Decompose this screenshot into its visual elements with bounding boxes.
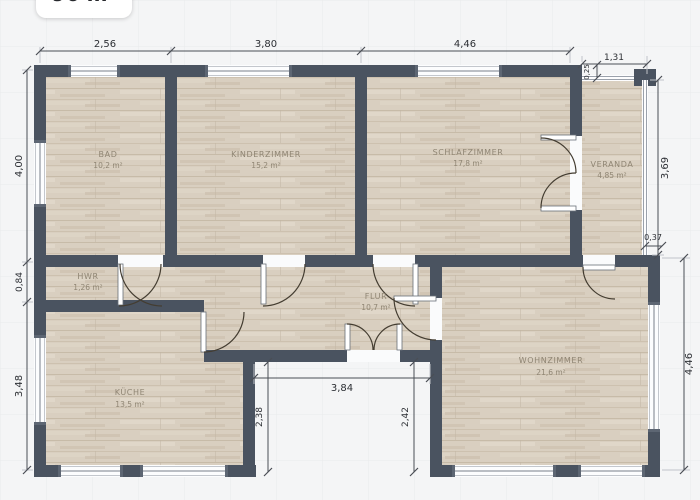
total-area-label: 96 m²: [52, 0, 116, 6]
room-name: KÜCHE: [115, 387, 146, 397]
room-name: BAD: [99, 150, 118, 159]
room-name: FLUR: [365, 292, 387, 301]
room-area: 4,85 m²: [597, 171, 626, 180]
room-area: 21,6 m²: [536, 368, 565, 377]
window: [578, 465, 645, 477]
window: [68, 65, 120, 77]
dimension-label: 0,37: [644, 233, 662, 242]
window: [452, 465, 556, 477]
floorplan-drawing: 2,56 3,80 4,46 1,31 0,25 4,00 0,84 3,48 …: [0, 0, 700, 500]
floor-wohnzimmer: [436, 260, 654, 472]
door-opening: [373, 255, 415, 267]
room-area: 17,8 m²: [453, 159, 482, 168]
door-leaf: [394, 296, 436, 301]
door-leaf: [201, 312, 206, 352]
dimension-label: 3,48: [14, 375, 25, 397]
wall-segment: [430, 255, 442, 477]
floorplan-canvas[interactable]: 2,56 3,80 4,46 1,31 0,25 4,00 0,84 3,48 …: [0, 0, 700, 500]
room-name: SCHLAFZIMMER: [433, 148, 504, 157]
room-name: VERANDA: [591, 160, 634, 169]
wall-segment: [243, 350, 255, 477]
door-opening: [347, 350, 400, 362]
window: [34, 140, 46, 207]
room-area: 1,26 m²: [73, 283, 102, 292]
room-area: 13,5 m²: [115, 400, 144, 409]
door-leaf: [583, 265, 615, 270]
room-name: HWR: [77, 272, 98, 281]
dimension-label: 2,38: [255, 407, 265, 427]
dimension-label: 1,31: [604, 53, 624, 63]
door-opening: [263, 255, 305, 267]
door-opening: [118, 255, 163, 267]
room-name: KINDERZIMMER: [231, 150, 301, 159]
total-area-badge: 96 m²: [36, 0, 132, 18]
floor-kueche: [40, 300, 250, 472]
door-leaf: [345, 324, 350, 350]
dimension-label: 4,46: [684, 353, 695, 375]
dimension-label: 2,42: [401, 407, 411, 427]
dimension-label: 0,25: [583, 64, 591, 80]
room-name: WOHNZIMMER: [519, 356, 583, 365]
dimension-label: 3,69: [660, 157, 671, 179]
door-leaf: [397, 324, 402, 350]
room-area: 10,7 m²: [361, 303, 390, 312]
door-opening: [430, 298, 442, 340]
wall-segment: [34, 255, 582, 267]
door-leaf: [261, 264, 266, 304]
room-area: 15,2 m²: [251, 161, 280, 170]
dimension-label: 3,80: [255, 39, 277, 50]
dimension-label: 4,00: [14, 155, 25, 177]
window: [34, 335, 46, 425]
door-leaf: [541, 206, 576, 211]
window: [58, 465, 123, 477]
room-area: 10,2 m²: [93, 161, 122, 170]
window: [648, 302, 660, 432]
dimension-label: 4,46: [454, 39, 476, 50]
wall-segment: [355, 65, 367, 267]
dimension-label: 3,84: [331, 383, 353, 394]
window: [140, 465, 228, 477]
dimension-label: 2,56: [94, 39, 116, 50]
wall-segment: [165, 65, 177, 267]
dimension-label: 0,84: [15, 272, 25, 292]
wall-segment: [204, 350, 442, 362]
door-leaf: [541, 135, 576, 140]
window: [205, 65, 292, 77]
window: [415, 65, 502, 77]
